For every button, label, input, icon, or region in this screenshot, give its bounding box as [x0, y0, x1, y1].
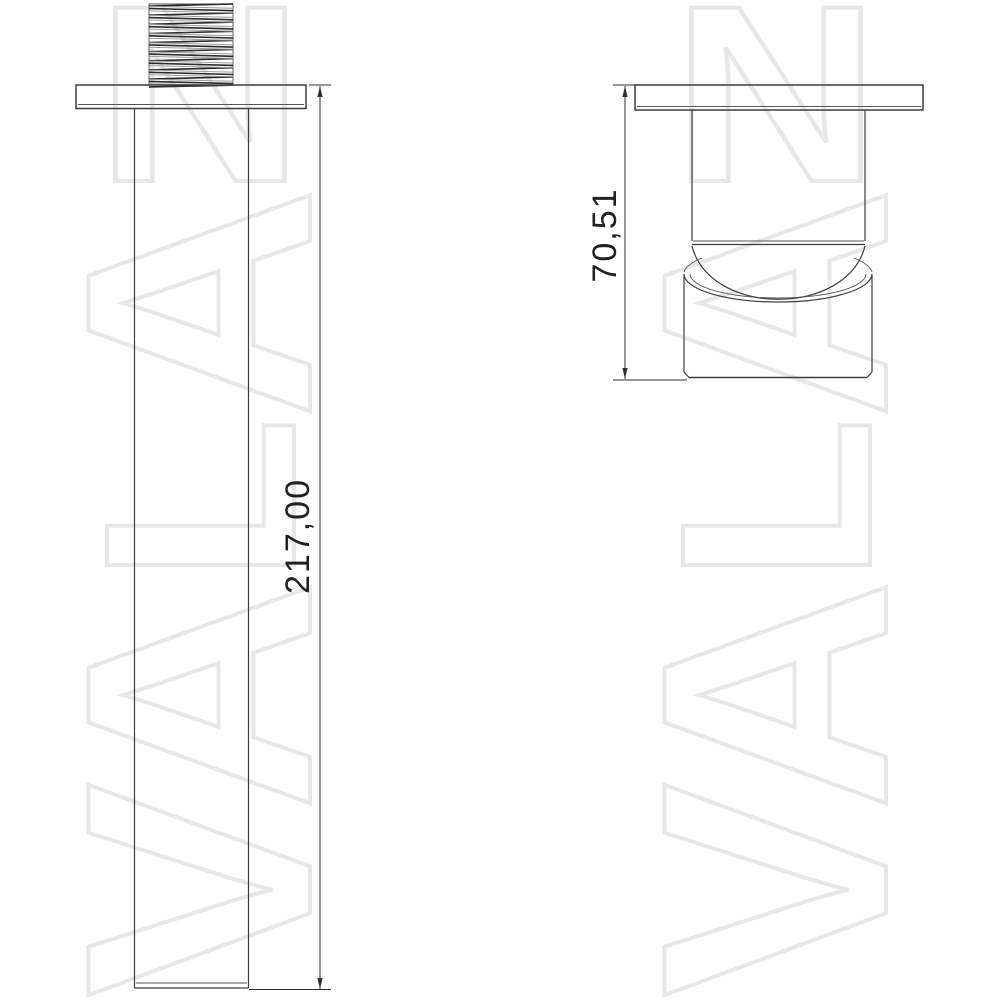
- front-view: 70,51: [586, 85, 923, 380]
- dimension-height: 70,51: [586, 85, 687, 380]
- technical-drawing-page: N A L A V N A L A V: [0, 0, 1000, 1000]
- flange-plate-front: [635, 85, 923, 110]
- dimension-height-label: 70,51: [586, 187, 624, 282]
- cylinder-body: [692, 110, 865, 245]
- thread: [149, 4, 233, 87]
- collar-cup: [684, 258, 872, 378]
- drawing-canvas: 217,00: [0, 0, 1000, 1000]
- dimension-length: 217,00: [249, 85, 331, 990]
- arm-shaft: [135, 109, 249, 989]
- dimension-length-label: 217,00: [279, 478, 317, 594]
- flange-plate-side: [76, 85, 306, 109]
- side-view: 217,00: [76, 4, 331, 990]
